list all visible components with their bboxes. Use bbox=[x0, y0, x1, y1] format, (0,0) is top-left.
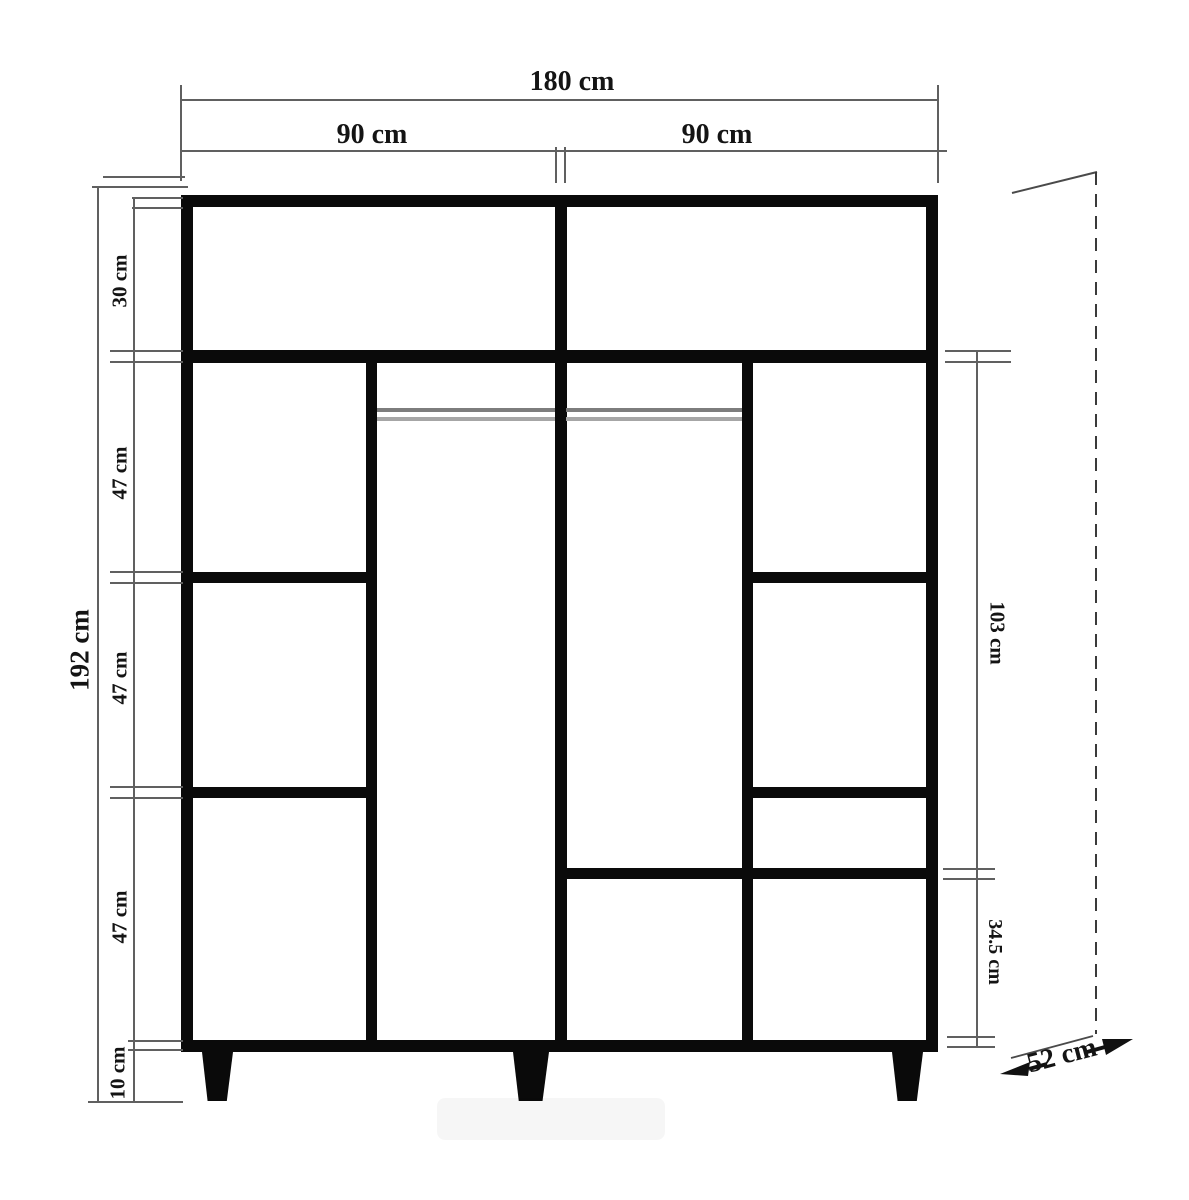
dimension-line-180 bbox=[181, 99, 939, 101]
tick-bottom-body bbox=[128, 1040, 183, 1042]
center-split-tick-2 bbox=[564, 147, 566, 183]
label-hanging-area: 103 cm bbox=[987, 601, 1008, 665]
tick-103-top-b bbox=[945, 361, 1011, 363]
tick-103-bottom bbox=[943, 868, 995, 870]
label-right-width: 90 cm bbox=[682, 121, 753, 149]
top-shelf bbox=[193, 350, 926, 363]
left-column-shelf-2 bbox=[193, 787, 366, 798]
depth-top-edge-line bbox=[1012, 172, 1097, 193]
tick-47a-b bbox=[110, 582, 183, 584]
hanging-rod-right bbox=[566, 408, 742, 412]
wardrobe-left-wall bbox=[181, 195, 193, 1052]
right-inner-divider bbox=[742, 363, 753, 1040]
right-column-shelf-1 bbox=[753, 572, 926, 583]
label-top-compartment: 30 cm bbox=[110, 254, 131, 307]
tick-30-bottom bbox=[110, 350, 183, 352]
dimension-line-segments bbox=[133, 197, 135, 1103]
tick-345-bottom-b bbox=[947, 1046, 995, 1048]
floor-line bbox=[88, 1101, 183, 1103]
tick-103-bottom-b bbox=[943, 878, 995, 880]
tick-47b-b bbox=[110, 797, 183, 799]
watermark bbox=[437, 1098, 665, 1140]
center-divider bbox=[555, 195, 567, 1052]
label-depth: 52 cm bbox=[1024, 1034, 1100, 1079]
label-lower-right: 34.5 cm bbox=[985, 919, 1005, 985]
tick-30-top-b bbox=[132, 207, 183, 209]
center-split-tick-1 bbox=[555, 147, 557, 183]
foot-center bbox=[513, 1052, 549, 1101]
depth-annotation bbox=[0, 0, 1189, 1200]
foot-right bbox=[892, 1052, 923, 1101]
wardrobe-dimension-diagram: 180 cm 90 cm 90 cm 192 cm 30 cm 47 cm 47… bbox=[0, 0, 1189, 1200]
label-legs: 10 cm bbox=[108, 1046, 129, 1099]
foot-left bbox=[202, 1052, 233, 1101]
wardrobe-right-wall bbox=[926, 195, 938, 1052]
left-inner-divider bbox=[366, 363, 377, 1040]
left-column-shelf-1 bbox=[193, 572, 366, 583]
dimension-line-192 bbox=[97, 186, 99, 1103]
tick-30-bottom-b bbox=[110, 361, 183, 363]
label-shelf-3: 47 cm bbox=[110, 890, 131, 943]
tick-top-b bbox=[92, 186, 188, 188]
hanging-rod-left bbox=[377, 408, 555, 412]
lower-middle-shelf bbox=[567, 868, 742, 879]
depth-arrow-left-icon bbox=[1000, 1062, 1030, 1076]
hanging-rod-right-shade bbox=[566, 417, 742, 421]
tick-103-top bbox=[945, 350, 1011, 352]
right-column-shelf-2 bbox=[753, 787, 926, 798]
tick-30-top bbox=[132, 197, 183, 199]
label-total-height: 192 cm bbox=[67, 609, 94, 691]
hanging-rod-left-shade bbox=[377, 417, 555, 421]
tick-345-bottom bbox=[947, 1036, 995, 1038]
label-total-width: 180 cm bbox=[530, 68, 615, 96]
tick-47b bbox=[110, 786, 183, 788]
label-left-width: 90 cm bbox=[337, 121, 408, 149]
tick-top-a bbox=[103, 176, 185, 178]
depth-arrow-right-icon bbox=[1102, 1039, 1133, 1055]
dimension-line-right bbox=[976, 351, 978, 1047]
tick-47a bbox=[110, 571, 183, 573]
label-shelf-1: 47 cm bbox=[110, 446, 131, 499]
lower-right-shelf bbox=[753, 868, 926, 879]
label-shelf-2: 47 cm bbox=[110, 651, 131, 704]
tick-bottom-body-b bbox=[128, 1049, 183, 1051]
